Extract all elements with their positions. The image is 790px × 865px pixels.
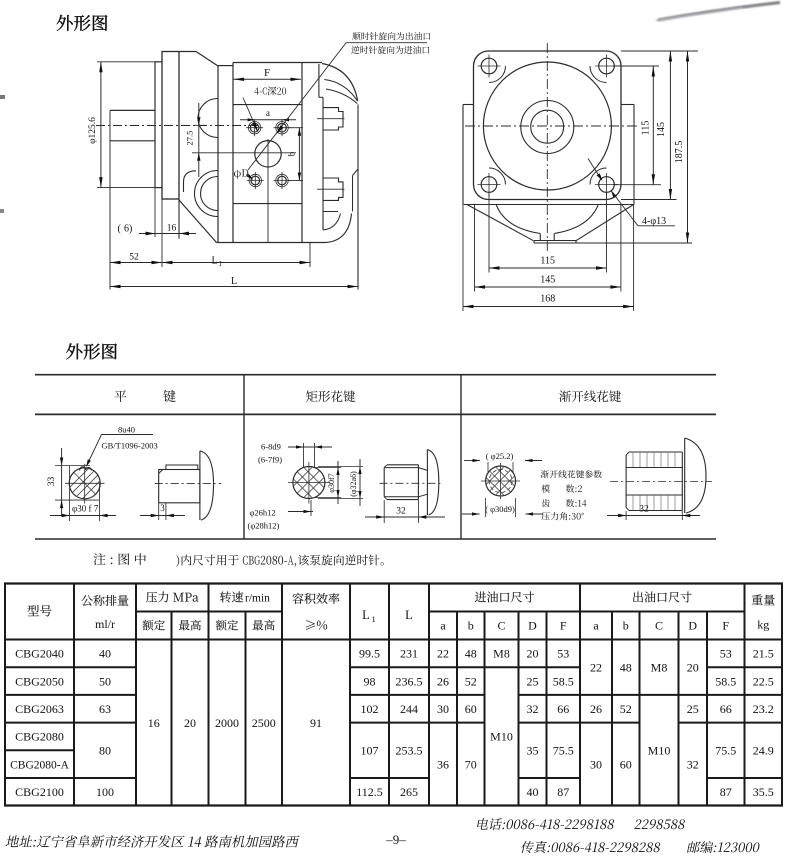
- svg-text:1: 1: [219, 260, 223, 268]
- svg-text:52: 52: [465, 674, 477, 688]
- svg-text:M10: M10: [490, 730, 513, 744]
- svg-text:48: 48: [620, 661, 632, 675]
- svg-text:ml/r: ml/r: [95, 617, 115, 631]
- svg-text:M10: M10: [648, 744, 671, 758]
- svg-text:2000: 2000: [215, 716, 239, 730]
- svg-text:2500: 2500: [252, 716, 276, 730]
- svg-text:C: C: [655, 619, 663, 633]
- svg-text:35.5: 35.5: [753, 785, 774, 799]
- svg-text:58.5: 58.5: [553, 674, 574, 688]
- svg-text:M8: M8: [651, 661, 668, 675]
- svg-text:91: 91: [310, 716, 322, 730]
- svg-text:D: D: [688, 619, 697, 633]
- svg-text:M8: M8: [493, 647, 510, 661]
- svg-text:52: 52: [129, 253, 139, 263]
- svg-text:25: 25: [527, 674, 539, 688]
- svg-text:60: 60: [465, 702, 477, 716]
- svg-text:168: 168: [540, 294, 555, 305]
- svg-text:236.5: 236.5: [396, 674, 423, 688]
- svg-text:F: F: [264, 67, 270, 79]
- svg-text:40: 40: [527, 785, 539, 799]
- svg-text:C: C: [497, 619, 505, 633]
- svg-text:24.9: 24.9: [753, 744, 774, 758]
- svg-text:F: F: [722, 619, 729, 633]
- svg-text:40: 40: [99, 647, 111, 661]
- svg-text:80: 80: [99, 744, 111, 758]
- svg-text:115: 115: [540, 256, 555, 267]
- svg-text:CBG2080-A: CBG2080-A: [10, 759, 69, 771]
- svg-text:253.5: 253.5: [396, 744, 423, 758]
- svg-text:63: 63: [99, 702, 111, 716]
- svg-text:3: 3: [160, 503, 165, 513]
- svg-text:23.2: 23.2: [753, 702, 774, 716]
- svg-text:20: 20: [687, 661, 699, 675]
- svg-text:F: F: [560, 619, 567, 633]
- svg-text:1: 1: [372, 614, 376, 624]
- svg-text:L: L: [405, 608, 413, 622]
- svg-text:70: 70: [465, 757, 477, 771]
- svg-text:100: 100: [96, 785, 114, 799]
- svg-text:4-φ13: 4-φ13: [642, 216, 666, 227]
- svg-text:107: 107: [361, 744, 379, 758]
- svg-text:(6-7f9): (6-7f9): [258, 455, 282, 465]
- svg-text:48: 48: [465, 647, 477, 661]
- svg-text:GB/T1096-2003: GB/T1096-2003: [102, 441, 158, 451]
- svg-text:16: 16: [167, 224, 177, 234]
- svg-text:–9–: –9–: [385, 832, 406, 847]
- svg-text:CBG2100: CBG2100: [15, 785, 64, 799]
- svg-text:22: 22: [437, 647, 449, 661]
- svg-text:53: 53: [557, 647, 569, 661]
- svg-text:a: a: [593, 619, 599, 633]
- svg-text:145: 145: [656, 122, 667, 137]
- svg-text:CBG2050: CBG2050: [15, 674, 64, 688]
- svg-text:36: 36: [437, 757, 449, 771]
- svg-text:231: 231: [400, 647, 418, 661]
- svg-text:D: D: [528, 619, 537, 633]
- svg-text:25: 25: [687, 702, 699, 716]
- svg-text:32: 32: [527, 702, 539, 716]
- svg-text:32: 32: [687, 757, 699, 771]
- svg-text:75.5: 75.5: [553, 744, 574, 758]
- svg-text:22: 22: [590, 661, 602, 675]
- svg-text:L: L: [362, 608, 370, 622]
- svg-text:102: 102: [361, 702, 379, 716]
- svg-text:L: L: [212, 256, 218, 267]
- svg-text:99.5: 99.5: [359, 647, 380, 661]
- svg-text:115: 115: [640, 121, 651, 136]
- svg-text:244: 244: [400, 702, 418, 716]
- svg-text:60: 60: [620, 757, 632, 771]
- svg-text:r/min: r/min: [245, 593, 270, 605]
- svg-text:112.5: 112.5: [356, 785, 383, 799]
- svg-text:35: 35: [527, 744, 539, 758]
- svg-text:87: 87: [557, 785, 569, 799]
- svg-text:32: 32: [639, 505, 649, 515]
- svg-text:8u40: 8u40: [118, 425, 135, 435]
- svg-text:a: a: [440, 619, 446, 633]
- svg-text:b: b: [287, 151, 297, 156]
- svg-text:32: 32: [396, 507, 406, 517]
- svg-text:98: 98: [364, 674, 376, 688]
- svg-text:145: 145: [540, 275, 555, 286]
- svg-text:φ30f7: φ30f7: [327, 473, 336, 492]
- svg-text:CBG2040: CBG2040: [15, 647, 64, 661]
- svg-text:φ125.6: φ125.6: [88, 117, 98, 144]
- svg-text:a: a: [266, 108, 270, 118]
- svg-text:kg: kg: [757, 618, 769, 632]
- svg-text:b: b: [623, 619, 629, 633]
- svg-text:58.5: 58.5: [715, 674, 736, 688]
- svg-text:30: 30: [590, 757, 602, 771]
- svg-text:22.5: 22.5: [753, 674, 774, 688]
- svg-text:27.5: 27.5: [184, 131, 194, 146]
- svg-text:66: 66: [720, 702, 732, 716]
- svg-text:6): 6): [124, 224, 132, 235]
- svg-text:(φ32a6): (φ32a6): [349, 471, 358, 497]
- svg-text:30: 30: [437, 702, 449, 716]
- svg-text:26: 26: [437, 674, 449, 688]
- svg-text:CBG2080: CBG2080: [15, 730, 64, 744]
- svg-text:L: L: [231, 276, 237, 287]
- svg-text:21.5: 21.5: [753, 647, 774, 661]
- svg-text:66: 66: [557, 702, 569, 716]
- svg-text:6-8d9: 6-8d9: [261, 442, 281, 452]
- svg-text:265: 265: [400, 785, 418, 799]
- svg-text:( φ30d9): ( φ30d9): [485, 504, 515, 514]
- svg-text:75.5: 75.5: [715, 744, 736, 758]
- svg-text:b: b: [468, 619, 474, 633]
- svg-text:52: 52: [620, 702, 632, 716]
- svg-text:50: 50: [99, 674, 111, 688]
- svg-text:(φ28h12): (φ28h12): [248, 521, 280, 531]
- svg-text:53: 53: [720, 647, 732, 661]
- svg-text:87: 87: [720, 785, 732, 799]
- svg-text:φ30 f 7: φ30 f 7: [72, 504, 99, 514]
- svg-text:20: 20: [184, 716, 196, 730]
- svg-text:33: 33: [47, 477, 57, 487]
- svg-text:16: 16: [148, 716, 160, 730]
- svg-text:26: 26: [590, 702, 602, 716]
- svg-text:187.5: 187.5: [674, 141, 685, 164]
- svg-text:φ26h12: φ26h12: [250, 508, 276, 518]
- svg-text:( φ25.2): ( φ25.2): [486, 451, 514, 461]
- svg-text:CBG2063: CBG2063: [15, 702, 64, 716]
- svg-text:20: 20: [527, 647, 539, 661]
